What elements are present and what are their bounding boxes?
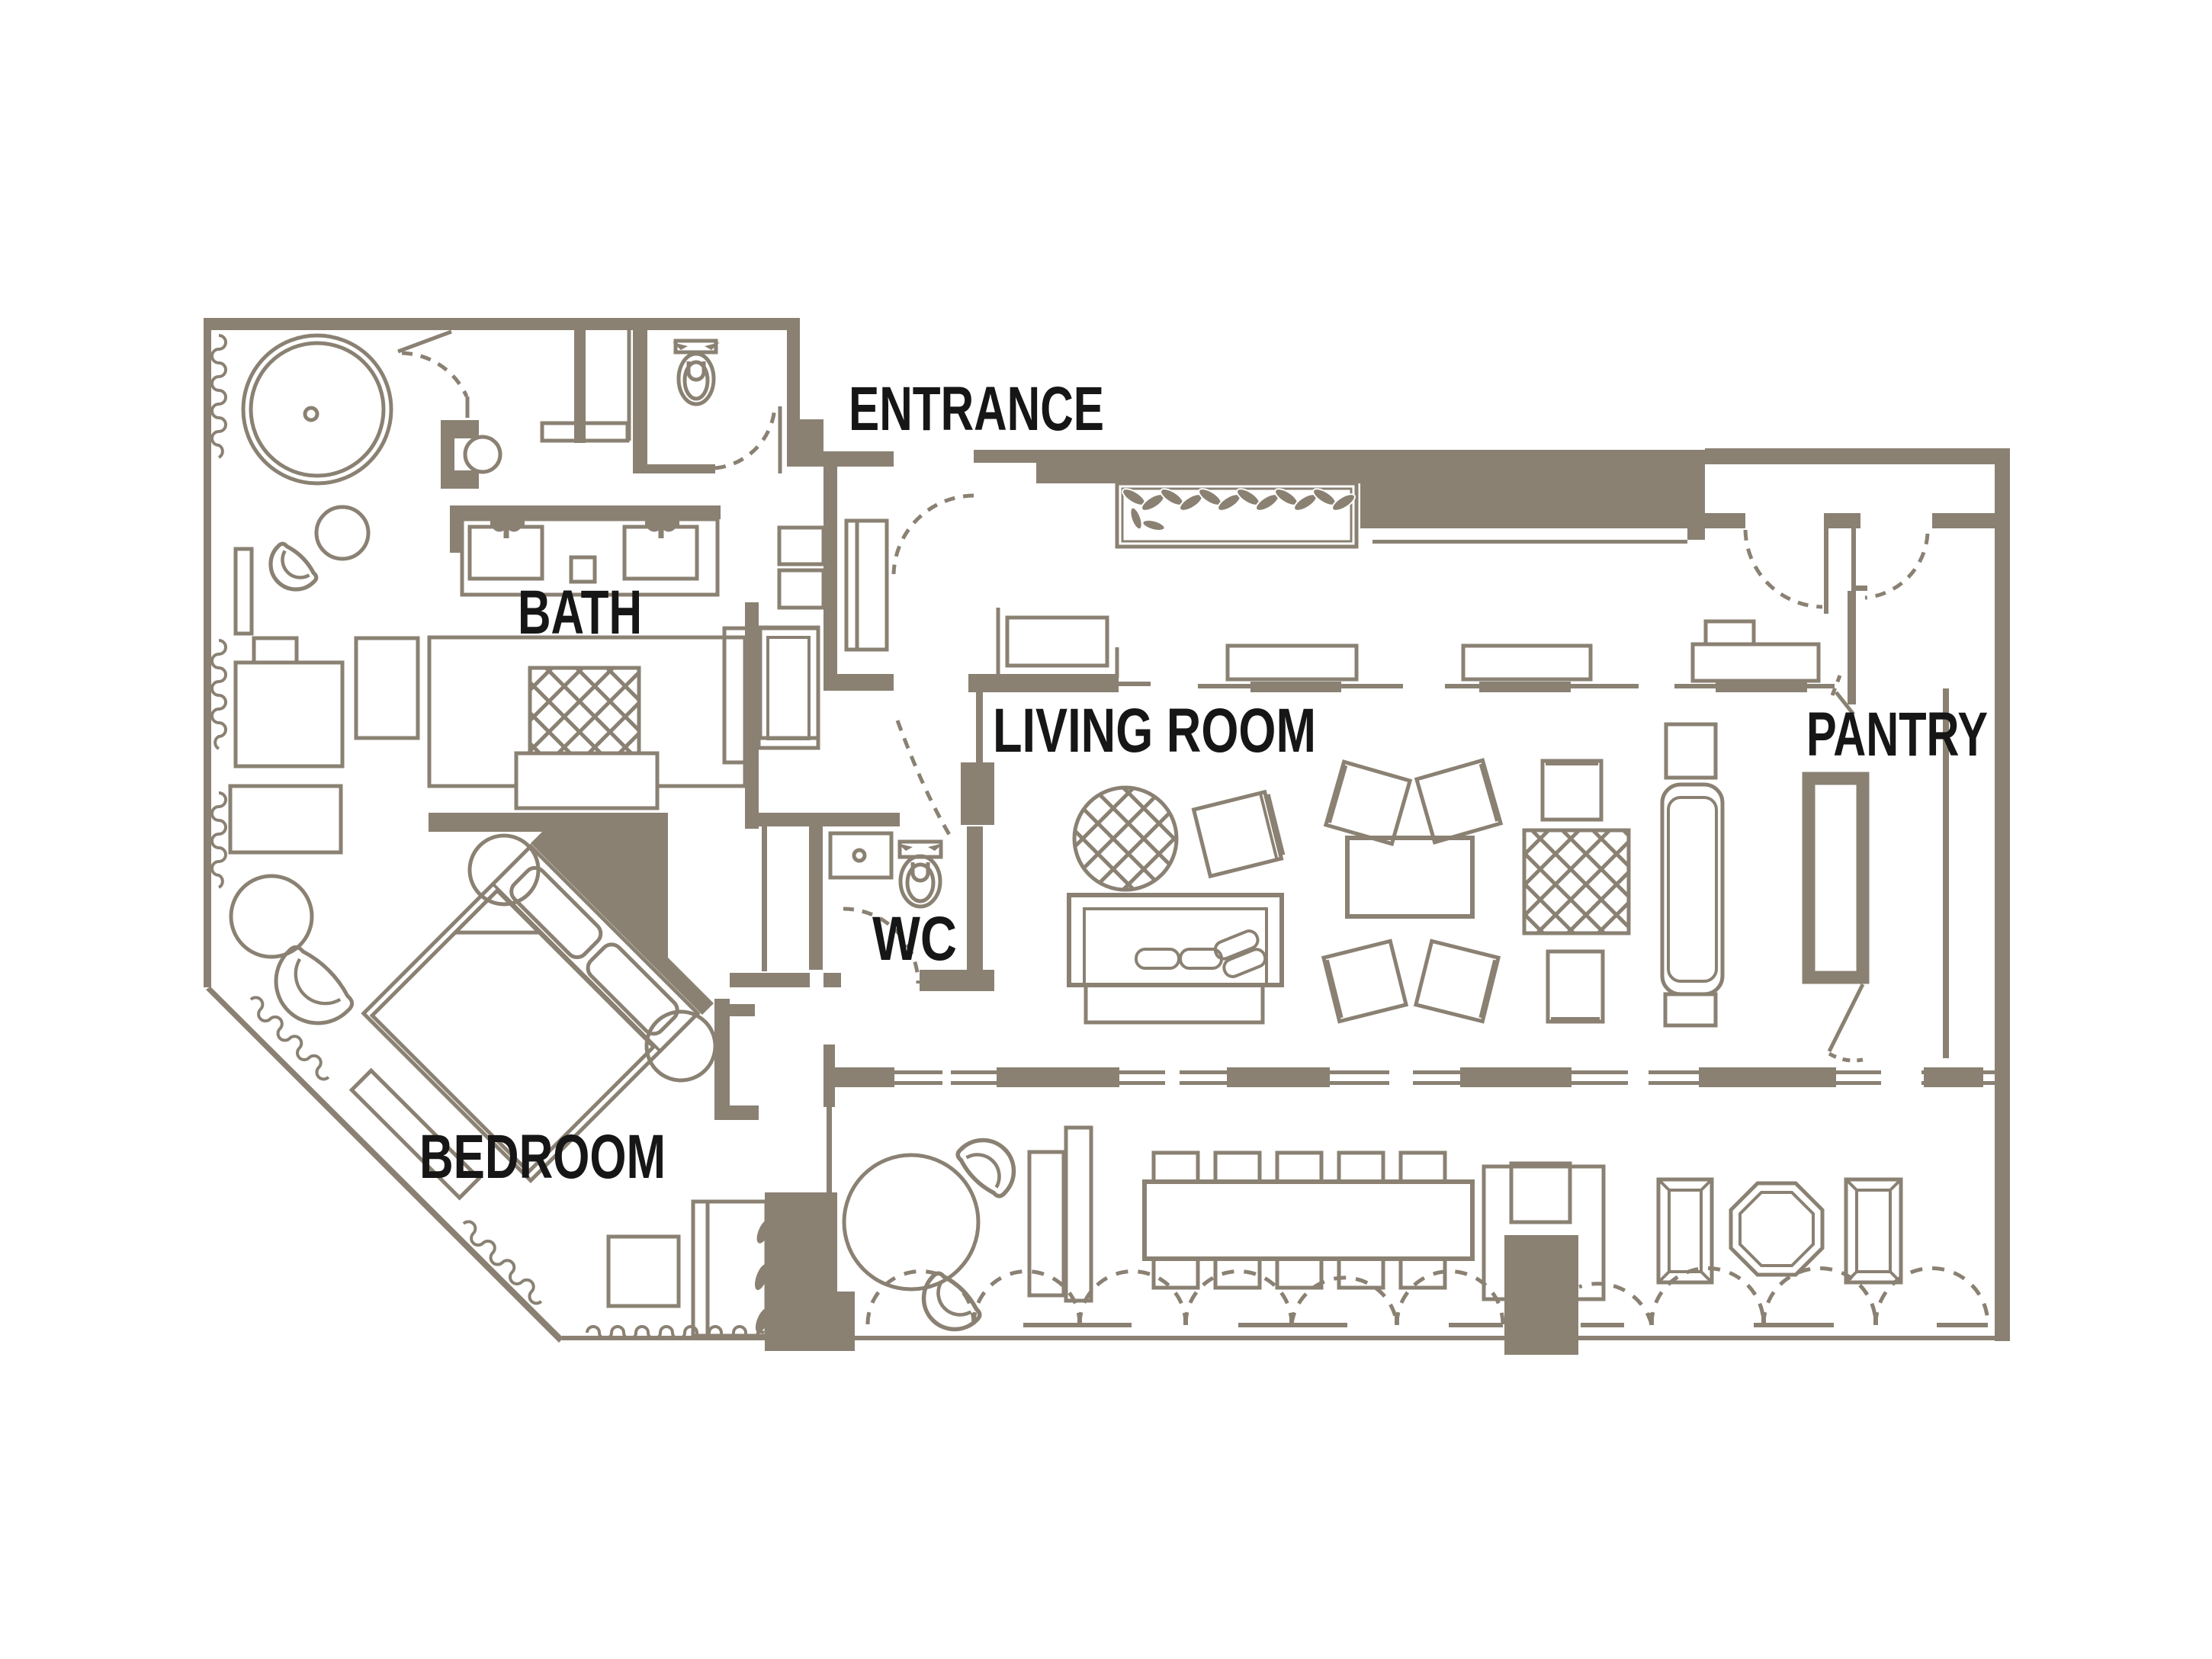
svg-text:ENTRANCE: ENTRANCE [849, 374, 1104, 444]
svg-text:PANTRY: PANTRY [1806, 700, 1988, 769]
svg-text:BEDROOM: BEDROOM [419, 1122, 666, 1192]
svg-text:LIVING ROOM: LIVING ROOM [993, 696, 1316, 765]
svg-text:WC: WC [872, 904, 957, 974]
svg-text:BATH: BATH [518, 578, 642, 647]
